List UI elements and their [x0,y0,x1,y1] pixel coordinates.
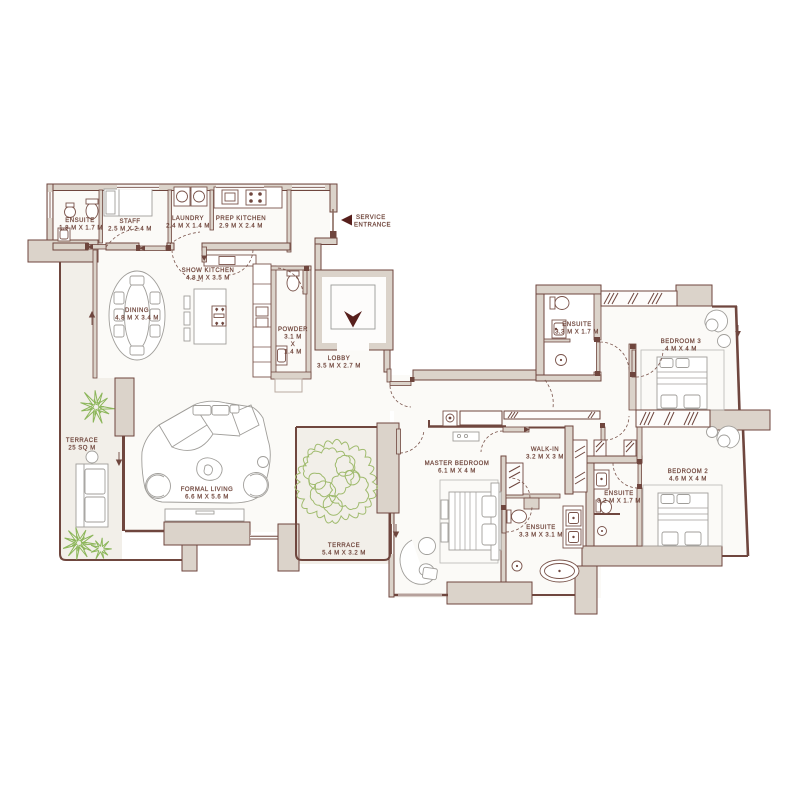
svg-text:X: X [291,342,296,348]
svg-text:DINING: DINING [125,308,149,314]
svg-text:4.8 M X 3.5 M: 4.8 M X 3.5 M [186,276,230,282]
svg-text:POWDER: POWDER [278,327,308,333]
svg-text:SERVICE: SERVICE [356,215,386,221]
svg-text:2.5 M X 2.4 M: 2.5 M X 2.4 M [108,227,152,233]
svg-text:25 SQ M: 25 SQ M [68,446,95,452]
svg-text:1.4 M: 1.4 M [284,350,302,356]
svg-text:4.6 M X 4 M: 4.6 M X 4 M [669,477,707,483]
svg-text:WALK-IN: WALK-IN [531,447,559,453]
svg-text:2.9 M X 2.4 M: 2.9 M X 2.4 M [219,224,263,230]
svg-text:ENSUITE: ENSUITE [65,218,95,224]
svg-text:MASTER BEDROOM: MASTER BEDROOM [425,461,490,467]
svg-text:1.8 M X 1.7 M: 1.8 M X 1.7 M [59,226,103,232]
svg-text:LOBBY: LOBBY [328,356,351,362]
svg-text:3.2 M X 1.7 M: 3.2 M X 1.7 M [597,499,641,505]
svg-text:SHOW KITCHEN: SHOW KITCHEN [182,268,235,274]
svg-text:3.3 M X 3.1 M: 3.3 M X 3.1 M [519,533,563,539]
svg-text:STAFF: STAFF [119,219,140,225]
svg-text:TERRACE: TERRACE [328,543,360,549]
svg-text:3.3 M X 1.7 M: 3.3 M X 1.7 M [555,330,599,336]
svg-text:3.2 M X 3 M: 3.2 M X 3 M [526,455,564,461]
svg-text:LAUNDRY: LAUNDRY [172,216,204,222]
svg-text:ENSUITE: ENSUITE [562,322,592,328]
svg-text:3.5 M X 2.7 M: 3.5 M X 2.7 M [317,364,361,370]
svg-text:ENTRANCE: ENTRANCE [354,223,391,229]
svg-text:3.1 M: 3.1 M [284,335,302,341]
svg-text:ENSUITE: ENSUITE [526,525,556,531]
svg-text:ENSUITE: ENSUITE [604,491,634,497]
svg-text:TERRACE: TERRACE [66,438,98,444]
svg-text:BEDROOM 2: BEDROOM 2 [668,469,709,475]
svg-text:5.4 M X 3.2 M: 5.4 M X 3.2 M [322,551,366,557]
svg-text:BEDROOM 3: BEDROOM 3 [661,339,702,345]
svg-text:PREP KITCHEN: PREP KITCHEN [216,216,266,222]
svg-text:2.4 M X 1.4 M: 2.4 M X 1.4 M [166,224,210,230]
svg-text:6.6 M X 5.6 M: 6.6 M X 5.6 M [185,495,229,501]
svg-text:4 M X 4 M: 4 M X 4 M [665,347,697,353]
svg-text:FORMAL LIVING: FORMAL LIVING [181,487,234,493]
svg-text:4.8 M X 3.4 M: 4.8 M X 3.4 M [115,316,159,322]
svg-text:6.1 M X 4 M: 6.1 M X 4 M [438,469,476,475]
